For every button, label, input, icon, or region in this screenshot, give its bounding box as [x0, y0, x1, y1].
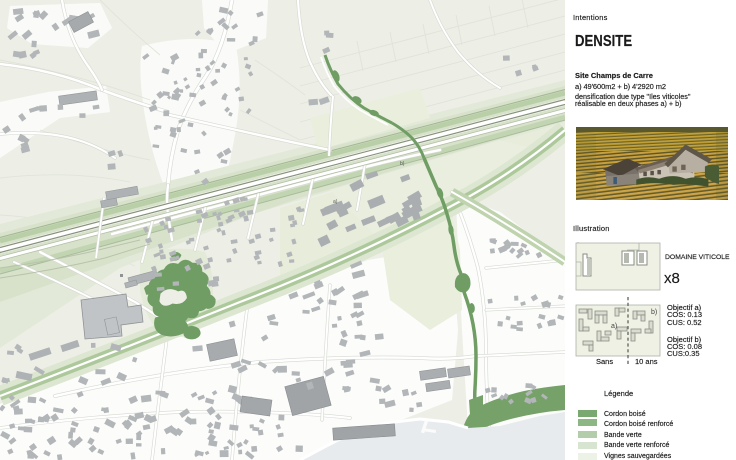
svg-text:a): a)	[611, 323, 617, 330]
svg-text:b): b)	[400, 161, 405, 167]
svg-text:b): b)	[651, 309, 657, 316]
svg-text:a): a)	[333, 199, 338, 205]
